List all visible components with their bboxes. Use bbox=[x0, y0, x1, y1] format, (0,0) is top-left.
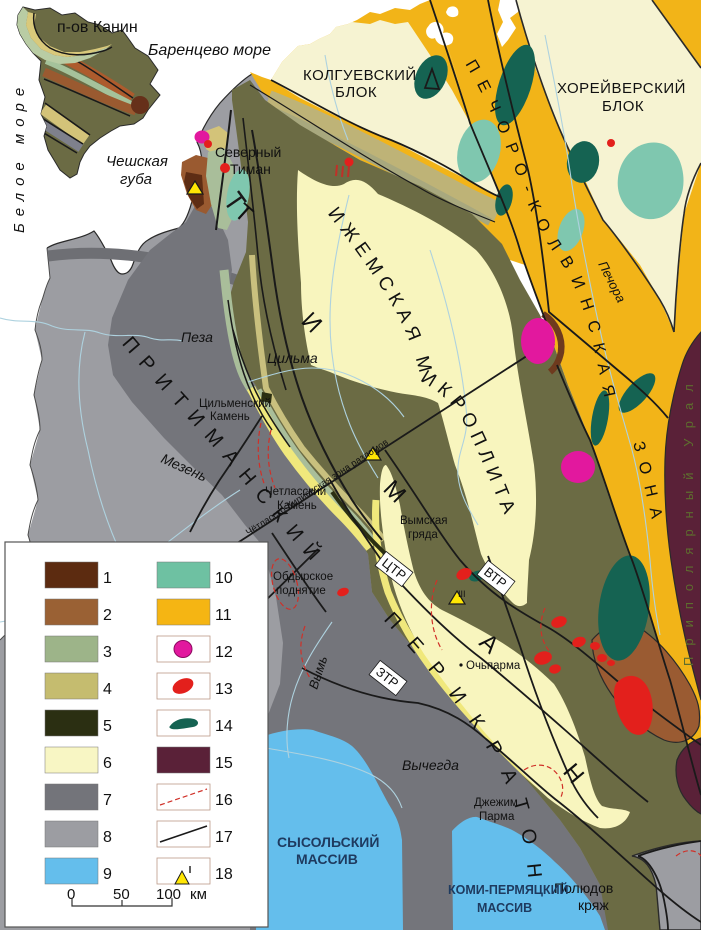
svg-text:поднятие: поднятие bbox=[276, 585, 326, 597]
svg-text:Камень: Камень bbox=[210, 411, 250, 423]
svg-text:КОМИ-ПЕРМЯЦКИЙ: КОМИ-ПЕРМЯЦКИЙ bbox=[448, 882, 569, 897]
svg-text:КОЛГУЕВСКИЙ: КОЛГУЕВСКИЙ bbox=[303, 66, 417, 84]
svg-text:Чешская: Чешская bbox=[106, 153, 168, 170]
svg-text:СЫСОЛЬСКИЙ: СЫСОЛЬСКИЙ bbox=[277, 833, 379, 850]
svg-text:Очьпарма: Очьпарма bbox=[466, 660, 521, 672]
svg-text:Северный: Северный bbox=[215, 144, 281, 160]
svg-text:1: 1 bbox=[103, 570, 112, 587]
svg-text:6: 6 bbox=[103, 755, 112, 772]
svg-text:5: 5 bbox=[103, 718, 112, 735]
svg-text:10: 10 bbox=[215, 570, 233, 587]
svg-text:18: 18 bbox=[215, 866, 233, 883]
svg-text:Приполярный Урал: Приполярный Урал bbox=[681, 373, 696, 666]
svg-text:14: 14 bbox=[215, 718, 233, 735]
svg-text:17: 17 bbox=[215, 829, 233, 846]
svg-text:50: 50 bbox=[113, 886, 130, 903]
svg-text:МАССИВ: МАССИВ bbox=[296, 851, 358, 867]
svg-text:Вымская: Вымская bbox=[400, 515, 448, 527]
svg-text:8: 8 bbox=[103, 829, 112, 846]
svg-text:Тиман: Тиман bbox=[230, 161, 271, 177]
svg-text:11: 11 bbox=[215, 607, 232, 624]
svg-text:гряда: гряда bbox=[408, 529, 438, 541]
svg-text:Обдырское: Обдырское bbox=[273, 571, 333, 583]
svg-text:п-ов Канин: п-ов Канин bbox=[57, 19, 138, 36]
svg-text:15: 15 bbox=[215, 755, 233, 772]
svg-text:2: 2 bbox=[103, 607, 112, 624]
svg-text:Вычегда: Вычегда bbox=[402, 757, 459, 773]
svg-text:Цильма: Цильма bbox=[267, 350, 318, 366]
svg-text:БЛОК: БЛОК bbox=[602, 98, 644, 115]
svg-text:7: 7 bbox=[103, 792, 112, 809]
svg-text:ХОРЕЙВЕРСКИЙ: ХОРЕЙВЕРСКИЙ bbox=[557, 79, 686, 97]
svg-text:БЛОК: БЛОК bbox=[335, 84, 377, 101]
svg-text:III: III bbox=[458, 589, 466, 599]
svg-text:100: 100 bbox=[156, 886, 181, 903]
svg-text:4: 4 bbox=[103, 681, 112, 698]
svg-text:0: 0 bbox=[67, 886, 75, 903]
svg-text:кряж: кряж bbox=[578, 897, 609, 913]
svg-text:16: 16 bbox=[215, 792, 233, 809]
svg-text:Баренцево море: Баренцево море bbox=[148, 42, 271, 59]
svg-text:3: 3 bbox=[103, 644, 112, 661]
svg-text:13: 13 bbox=[215, 681, 233, 698]
svg-text:МАССИВ: МАССИВ bbox=[477, 901, 532, 915]
svg-text:губа: губа bbox=[120, 171, 152, 188]
svg-text:Цильменский: Цильменский bbox=[199, 398, 271, 410]
svg-text:км: км bbox=[190, 886, 207, 903]
svg-text:Белое море: Белое море bbox=[11, 81, 28, 233]
svg-text:12: 12 bbox=[215, 644, 233, 661]
svg-text:9: 9 bbox=[103, 866, 112, 883]
svg-text:Парма: Парма bbox=[479, 811, 515, 823]
svg-text:Пеза: Пеза bbox=[181, 329, 213, 345]
